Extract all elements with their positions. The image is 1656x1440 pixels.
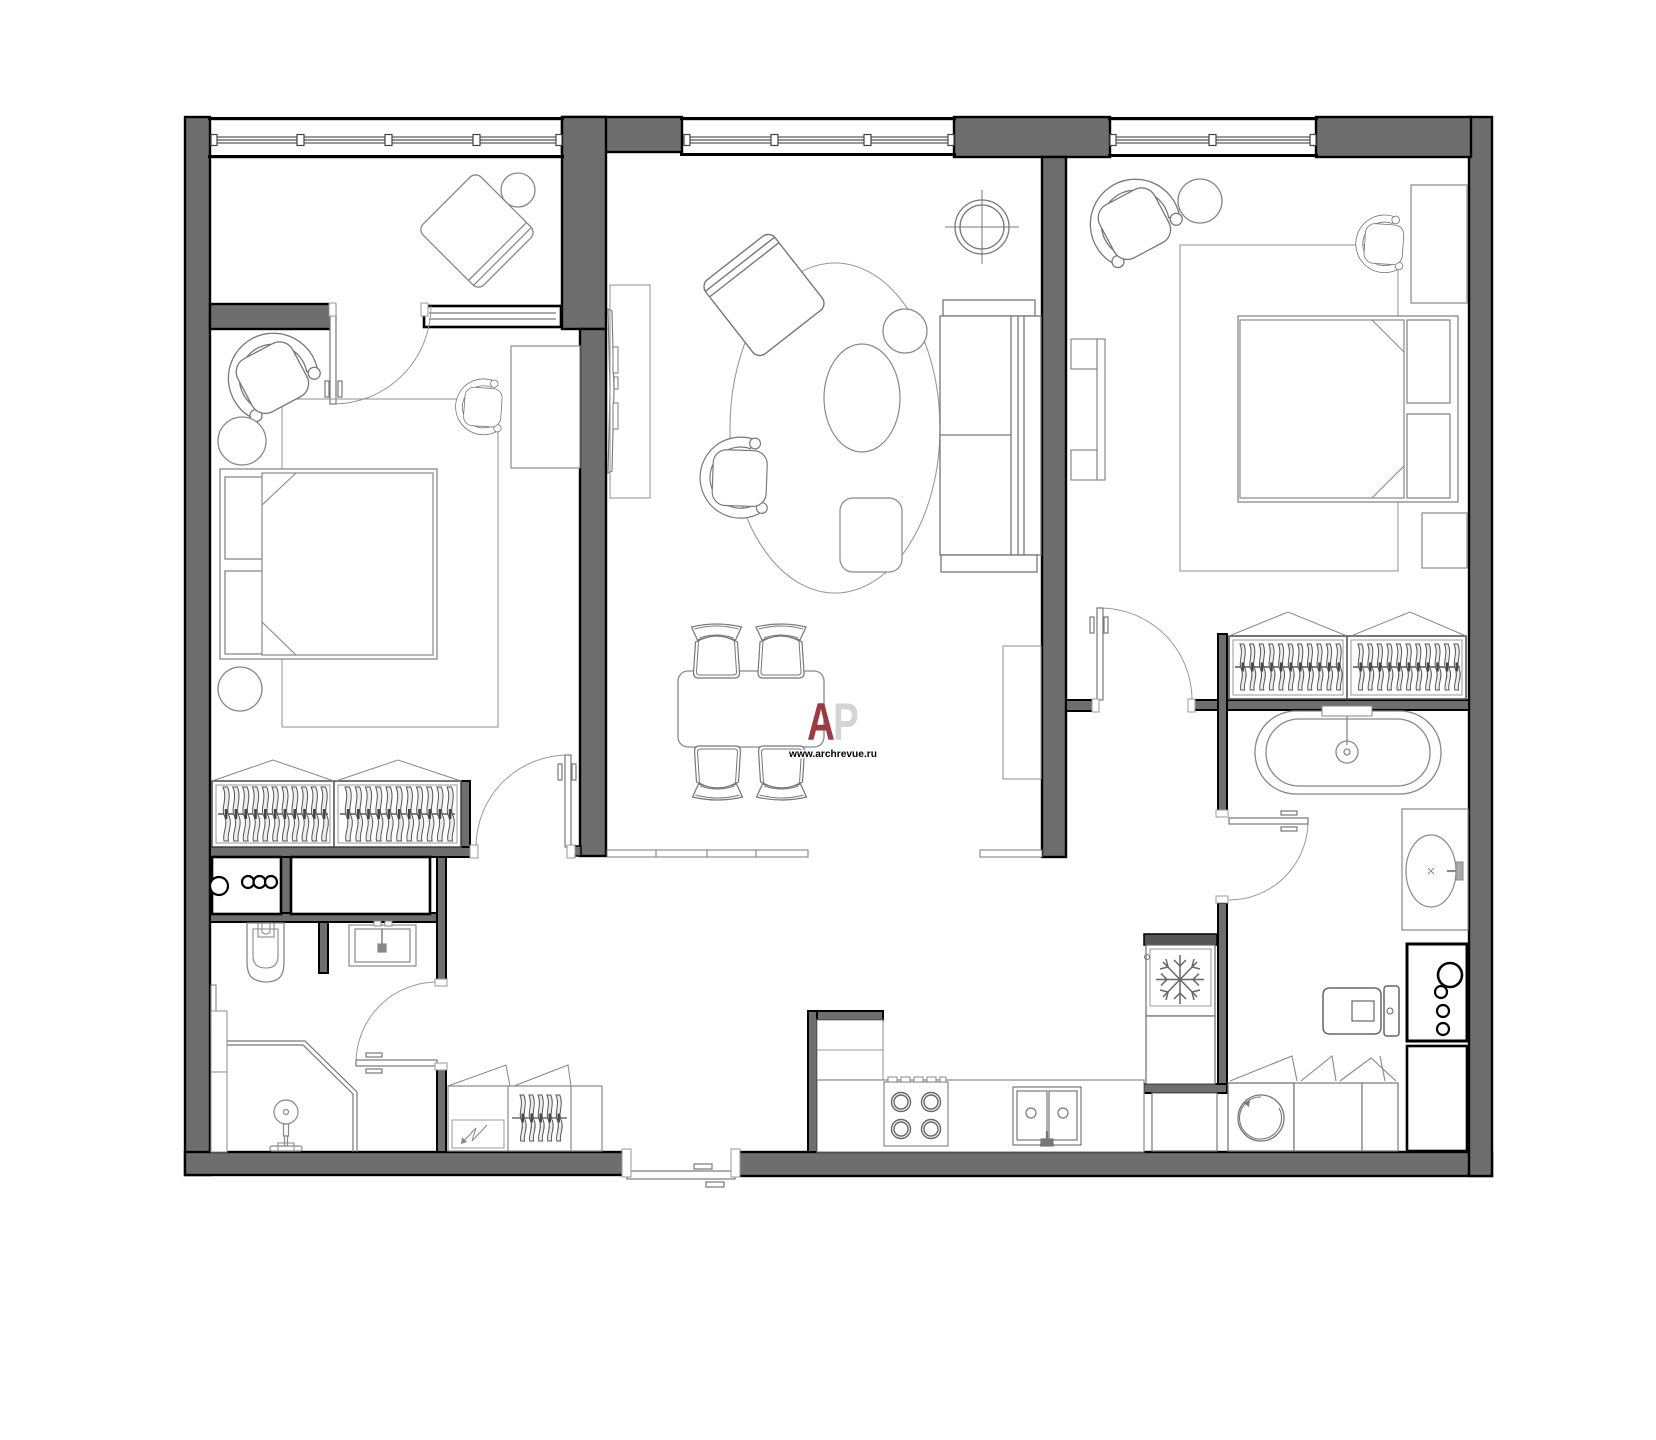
svg-text:www.archrevue.ru: www.archrevue.ru <box>788 749 877 760</box>
svg-text:Р: Р <box>833 692 859 751</box>
svg-text:А: А <box>807 692 835 751</box>
